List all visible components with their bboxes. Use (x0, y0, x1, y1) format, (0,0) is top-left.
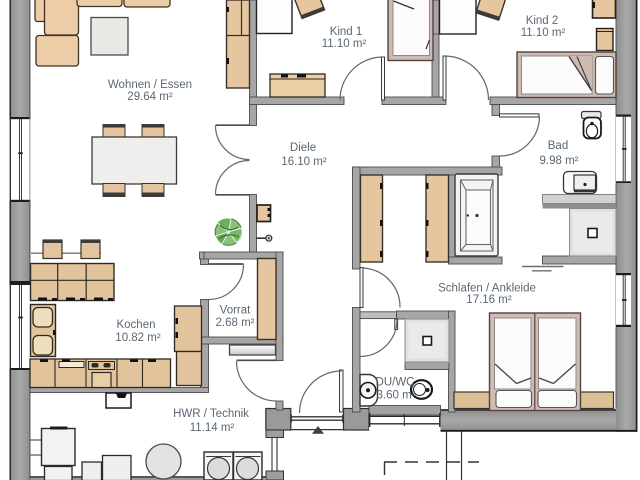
svg-text:3.60 m²: 3.60 m² (377, 390, 416, 402)
svg-text:17.16 m²: 17.16 m² (466, 294, 512, 306)
svg-text:2.68 m²: 2.68 m² (216, 317, 255, 329)
svg-text:Schlafen / Ankleide: Schlafen / Ankleide (438, 283, 536, 295)
svg-text:11.10 m²: 11.10 m² (521, 27, 566, 39)
svg-text:Vorrat: Vorrat (220, 305, 251, 317)
svg-text:16.10 m²: 16.10 m² (281, 156, 327, 168)
svg-text:11.14 m²: 11.14 m² (190, 422, 235, 434)
svg-text:Diele: Diele (290, 142, 316, 154)
svg-text:Bad: Bad (548, 140, 568, 152)
svg-text:Kind 2: Kind 2 (526, 15, 559, 27)
svg-text:Wohnen / Essen: Wohnen / Essen (108, 79, 192, 91)
svg-text:HWR / Technik: HWR / Technik (173, 408, 249, 420)
svg-text:9.98 m²: 9.98 m² (540, 155, 579, 167)
svg-text:DU/WC: DU/WC (376, 377, 415, 389)
svg-text:29.64 m²: 29.64 m² (127, 91, 173, 103)
svg-text:Kochen: Kochen (116, 319, 155, 331)
svg-text:11.10 m²: 11.10 m² (322, 38, 367, 50)
svg-text:Kind 1: Kind 1 (330, 26, 363, 38)
svg-text:10.82 m²: 10.82 m² (115, 332, 161, 344)
